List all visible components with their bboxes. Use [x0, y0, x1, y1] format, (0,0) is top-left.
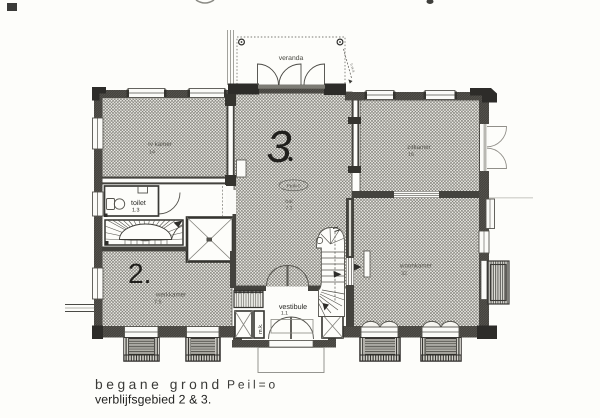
- svg-text:tv kamer: tv kamer: [148, 141, 172, 148]
- svg-text:7.3: 7.3: [286, 206, 293, 212]
- svg-text:veranda: veranda: [279, 55, 304, 62]
- svg-text:woonkamer: woonkamer: [399, 263, 432, 270]
- svg-text:14: 14: [149, 150, 155, 156]
- svg-text:1.3: 1.3: [132, 208, 140, 214]
- svg-text:werkkamer: werkkamer: [155, 292, 186, 299]
- svg-text:1.1: 1.1: [281, 311, 288, 317]
- svg-text:toilet: toilet: [131, 199, 146, 207]
- svg-text:16: 16: [408, 152, 414, 158]
- svg-text:begane grond: begane grond: [95, 377, 223, 392]
- svg-text:32: 32: [401, 271, 407, 277]
- svg-text:Peil=0: Peil=0: [286, 183, 300, 189]
- svg-text:hal: hal: [285, 199, 292, 205]
- svg-text:m.k.: m.k.: [257, 323, 264, 334]
- svg-text:7.5: 7.5: [154, 300, 162, 306]
- svg-text:zitkamer: zitkamer: [407, 144, 430, 151]
- svg-text:Peil=o: Peil=o: [227, 378, 278, 392]
- svg-text:2.: 2.: [128, 258, 151, 289]
- svg-text:3: 3: [266, 121, 291, 172]
- svg-text:verblijfsgebied 2 & 3.: verblijfsgebied 2 & 3.: [95, 393, 211, 407]
